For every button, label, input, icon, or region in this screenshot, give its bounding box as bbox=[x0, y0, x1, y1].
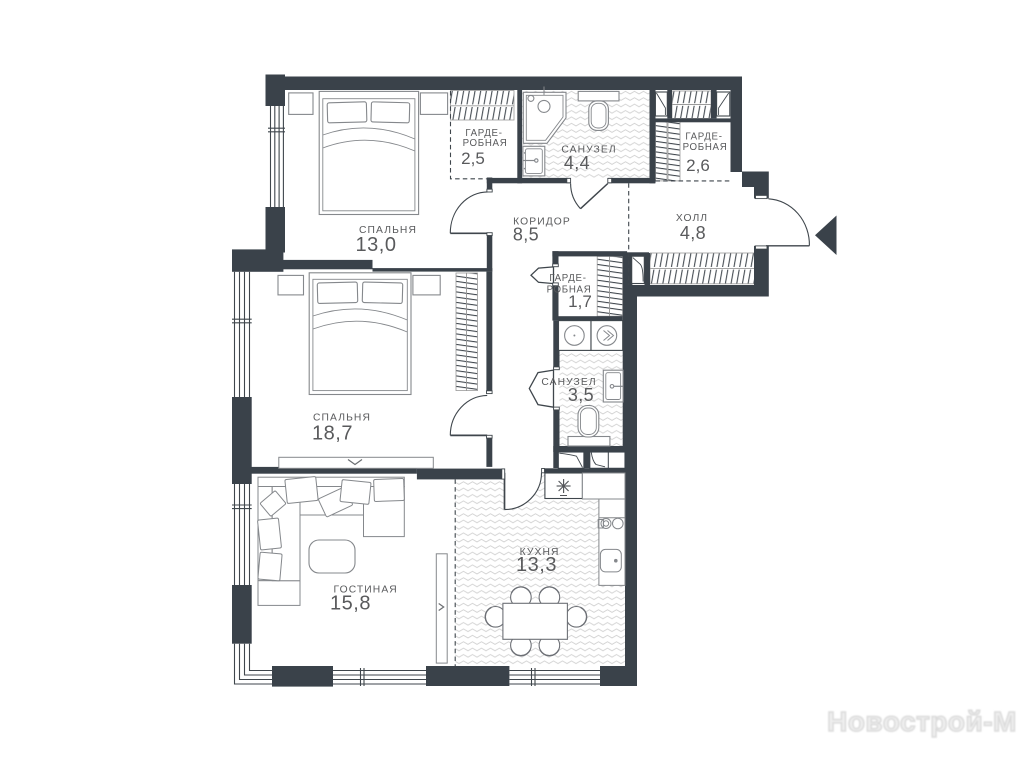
svg-text:15,8: 15,8 bbox=[330, 593, 371, 615]
svg-text:РОБНАЯ: РОБНАЯ bbox=[683, 142, 728, 153]
svg-text:1,7: 1,7 bbox=[568, 292, 592, 311]
svg-text:8,5: 8,5 bbox=[513, 224, 539, 244]
svg-text:2,6: 2,6 bbox=[686, 156, 710, 175]
svg-text:13,3: 13,3 bbox=[516, 554, 557, 576]
svg-text:РОБНАЯ: РОБНАЯ bbox=[463, 138, 508, 149]
svg-text:18,7: 18,7 bbox=[312, 423, 353, 445]
svg-text:ГАРДЕ-: ГАРДЕ- bbox=[549, 273, 586, 284]
svg-text:4,4: 4,4 bbox=[564, 153, 590, 173]
svg-text:3,5: 3,5 bbox=[568, 385, 594, 405]
svg-text:ГАРДЕ-: ГАРДЕ- bbox=[465, 128, 502, 139]
svg-text:13,0: 13,0 bbox=[356, 234, 397, 256]
svg-text:2,5: 2,5 bbox=[461, 149, 485, 168]
svg-text:Новострой-М: Новострой-М bbox=[827, 706, 1017, 737]
svg-text:4,8: 4,8 bbox=[680, 223, 706, 243]
svg-text:ГАРДЕ-: ГАРДЕ- bbox=[685, 132, 722, 143]
